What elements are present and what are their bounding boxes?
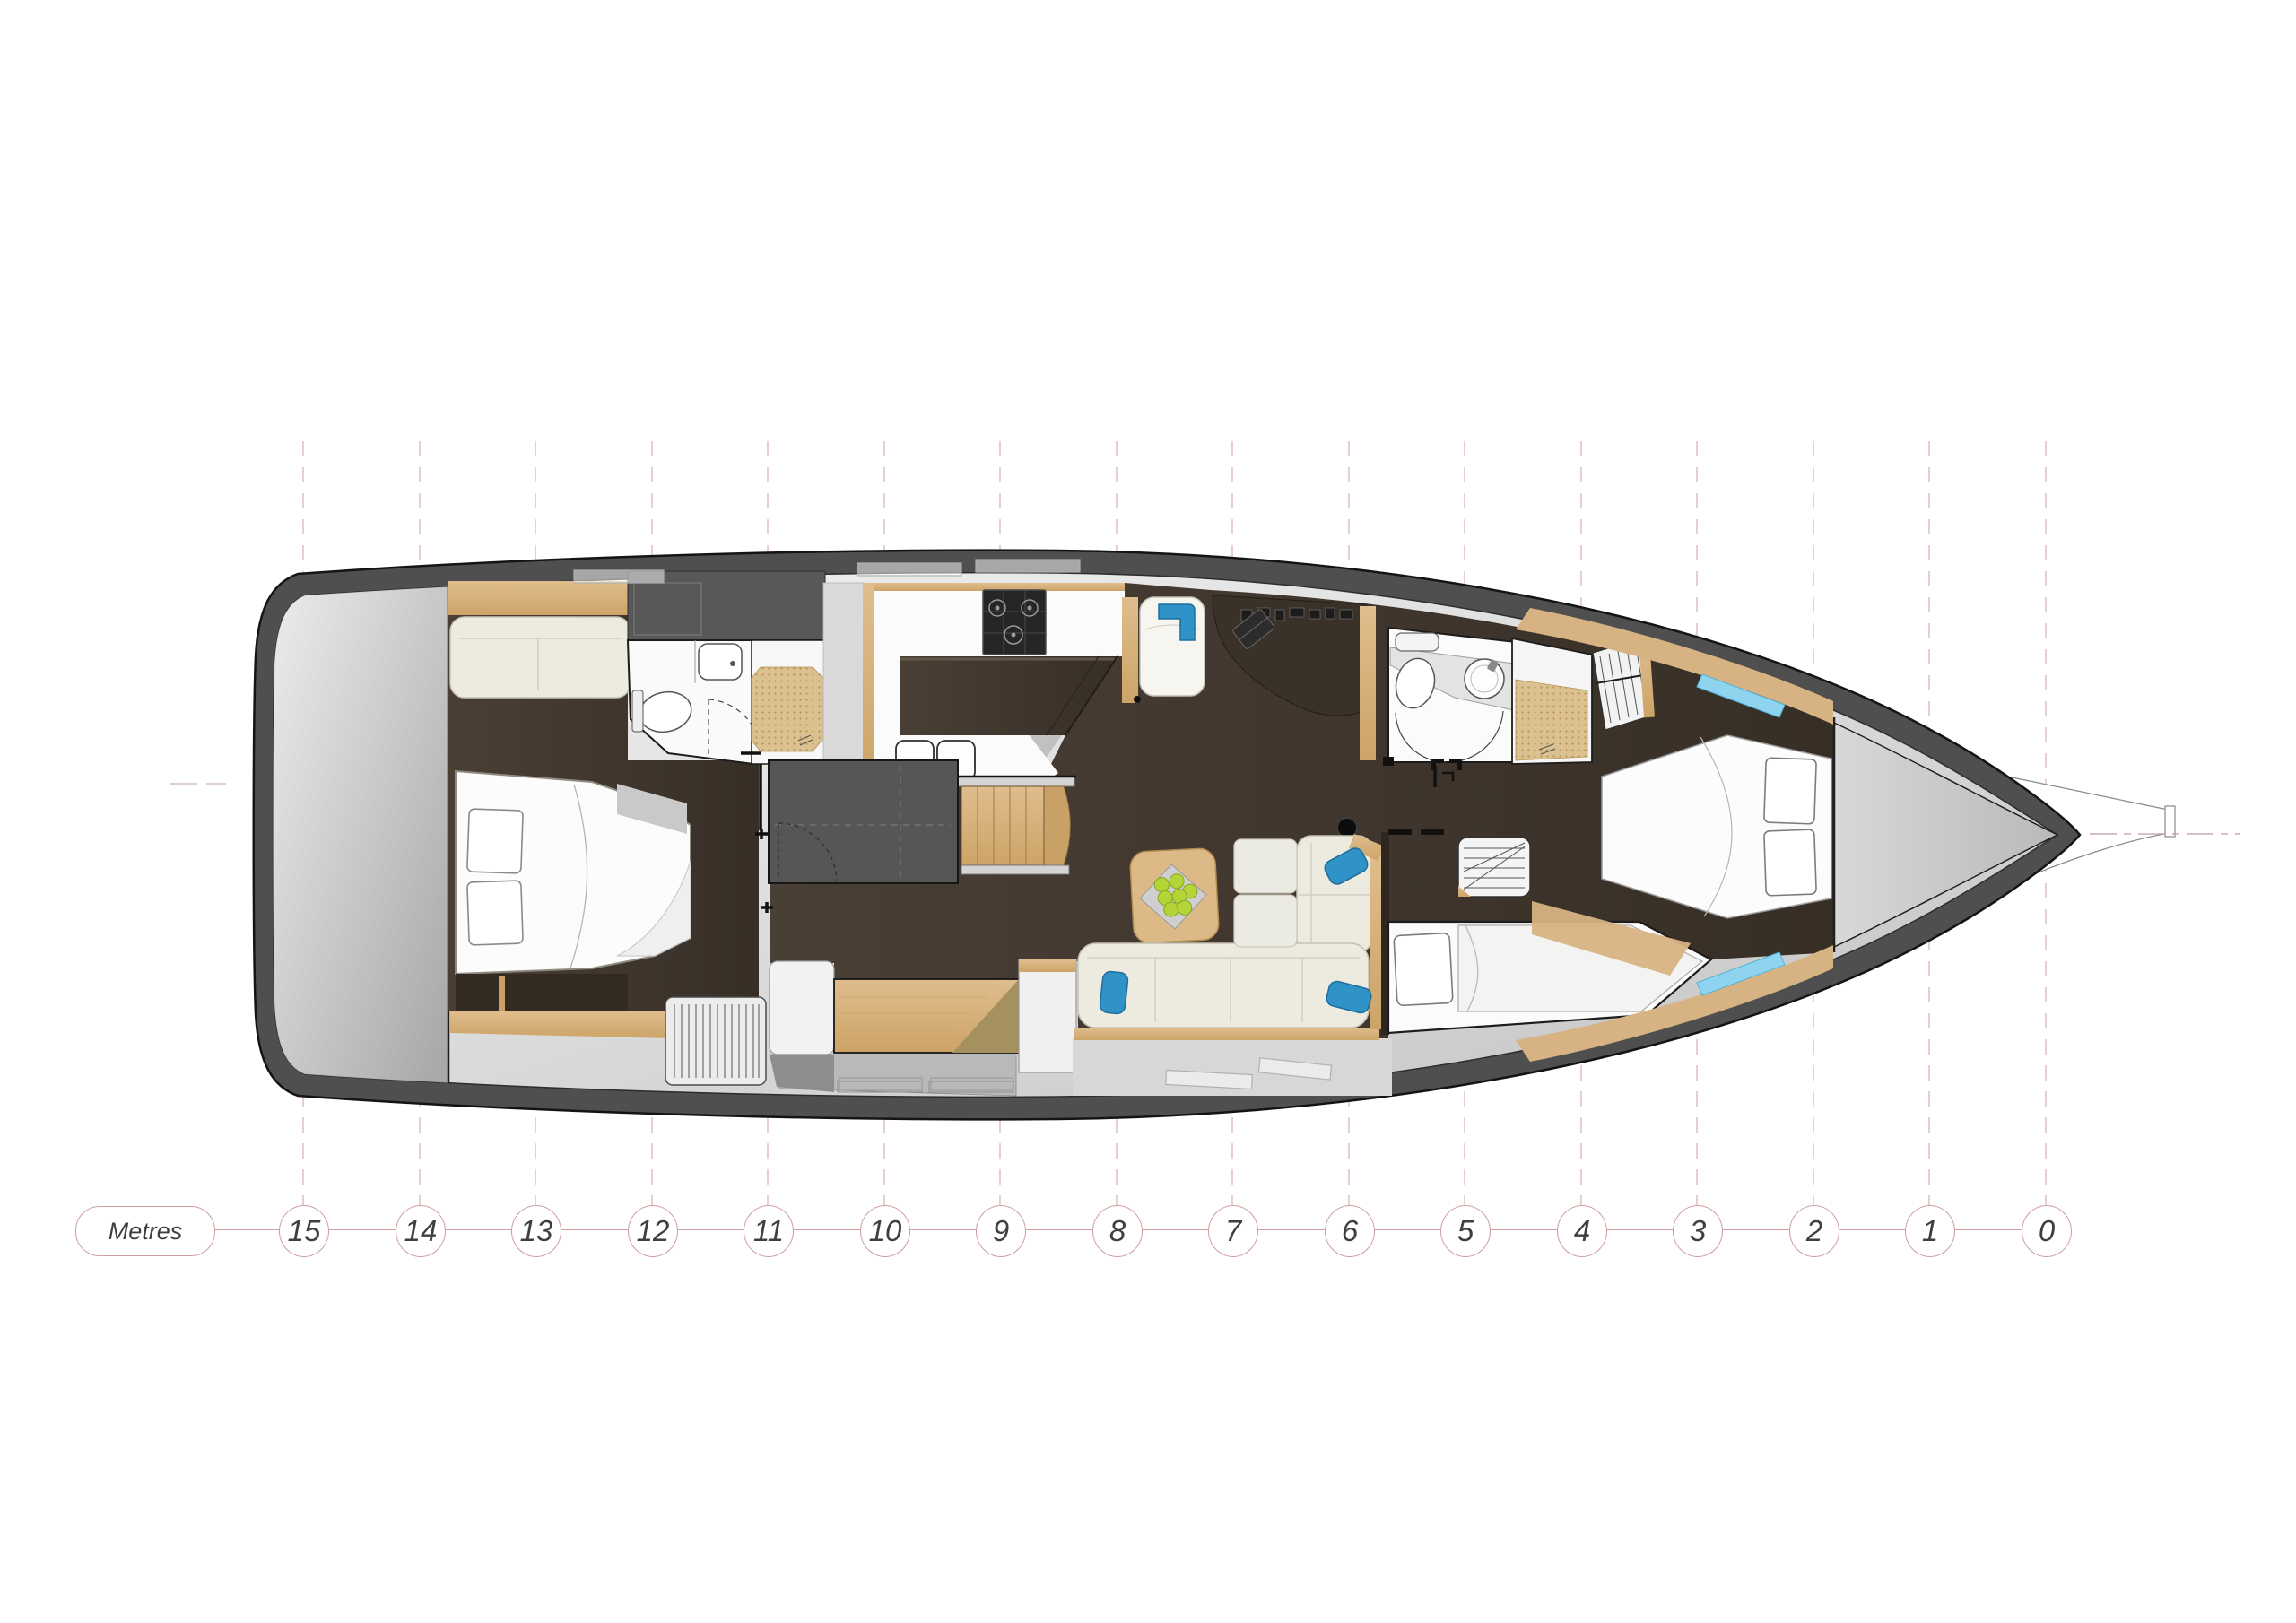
aft-bed-footlocker xyxy=(456,974,628,1011)
port-fwd-pillow xyxy=(1394,933,1453,1005)
aft-shower xyxy=(752,640,825,764)
forward-head-room xyxy=(1383,628,1516,770)
fwd-head-sink xyxy=(1465,659,1504,699)
coffee-table xyxy=(1129,848,1219,944)
mast-post xyxy=(1337,818,1357,838)
companionway-stairs xyxy=(956,777,1076,874)
aft-cabin-sofa xyxy=(450,617,631,698)
galley-trim-left xyxy=(863,583,874,785)
nav-trim xyxy=(1122,597,1138,703)
stove-icon xyxy=(983,590,1046,655)
floorplan-drawing xyxy=(0,0,2296,1623)
stern-lazarette xyxy=(269,538,448,1130)
yacht-deck-plan: Metres 15 14 13 12 11 10 9 8 7 6 5 4 3 2… xyxy=(0,0,2296,1623)
aft-head-sink xyxy=(695,640,742,683)
head-galley-bulkhead xyxy=(823,583,865,785)
chart-trim xyxy=(1360,606,1376,760)
door-stop-dot xyxy=(1134,696,1141,703)
aft-shelf-wood xyxy=(448,581,637,615)
aft-slatted-locker xyxy=(665,997,766,1085)
forward-shower xyxy=(1512,638,1592,764)
hanging-locker xyxy=(1458,838,1530,897)
utility-block xyxy=(769,760,958,883)
